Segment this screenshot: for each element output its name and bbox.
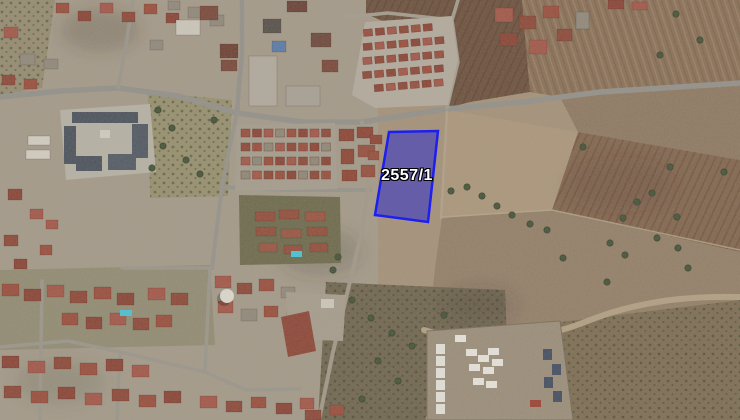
satellite-map: 2557/1 <box>0 0 740 420</box>
grain-overlay <box>0 0 740 420</box>
satellite-imagery <box>0 0 740 420</box>
